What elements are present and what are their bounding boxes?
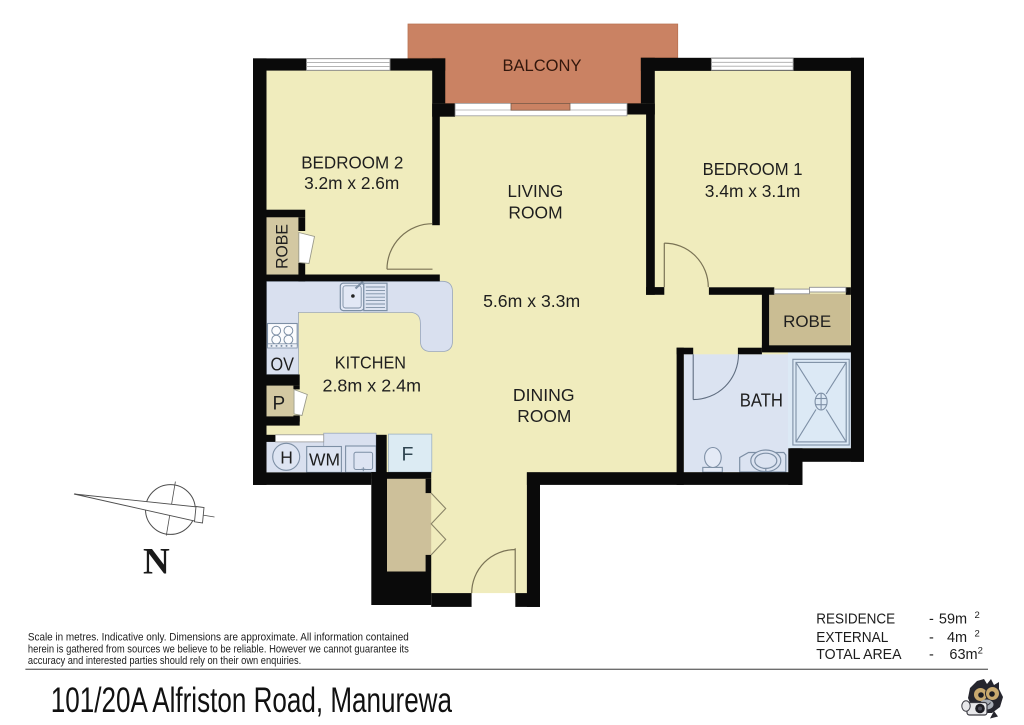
svg-text:59m: 59m (939, 612, 967, 628)
svg-text:DINING: DINING (513, 385, 575, 405)
svg-text:2: 2 (975, 610, 980, 621)
svg-text:herein is gathered from source: herein is gathered from sources we belie… (28, 643, 409, 655)
svg-text:-: - (929, 647, 934, 663)
svg-text:Scale in metres. Indicative on: Scale in metres. Indicative only. Dimens… (28, 631, 409, 643)
svg-text:2.8m x 2.4m: 2.8m x 2.4m (323, 376, 422, 396)
svg-text:EXTERNAL: EXTERNAL (816, 630, 888, 646)
svg-text:TOTAL AREA: TOTAL AREA (816, 647, 902, 663)
svg-text:LIVING: LIVING (508, 181, 564, 201)
svg-text:ROOM: ROOM (508, 203, 562, 223)
svg-text:P: P (273, 394, 286, 415)
svg-text:F: F (402, 444, 414, 466)
svg-text:accuracy and interested partie: accuracy and interested parties should r… (28, 655, 301, 667)
svg-text:KITCHEN: KITCHEN (335, 353, 406, 373)
svg-text:3.2m x 2.6m: 3.2m x 2.6m (304, 173, 399, 193)
svg-text:ROBE: ROBE (783, 312, 831, 331)
svg-text:101/20A Alfriston Road, Manure: 101/20A Alfriston Road, Manurewa (51, 680, 452, 720)
svg-text:BALCONY: BALCONY (503, 56, 582, 75)
svg-text:63m: 63m (949, 647, 977, 663)
svg-text:-: - (929, 630, 934, 646)
svg-text:BEDROOM 1: BEDROOM 1 (703, 159, 803, 179)
svg-text:OV: OV (271, 354, 295, 375)
svg-text:H: H (280, 448, 293, 468)
svg-text:BEDROOM 2: BEDROOM 2 (301, 153, 403, 173)
svg-text:N: N (143, 542, 170, 583)
svg-text:-: - (929, 612, 934, 628)
svg-text:4m: 4m (947, 630, 967, 646)
svg-text:ROOM: ROOM (517, 406, 571, 426)
svg-text:2: 2 (978, 645, 983, 656)
svg-text:5.6m x 3.3m: 5.6m x 3.3m (483, 291, 580, 311)
svg-text:3.4m x 3.1m: 3.4m x 3.1m (705, 181, 801, 201)
svg-text:WM: WM (309, 450, 340, 470)
svg-text:BATH: BATH (740, 391, 783, 411)
svg-text:ROBE: ROBE (273, 224, 292, 269)
svg-text:2: 2 (975, 628, 980, 639)
svg-text:RESIDENCE: RESIDENCE (816, 612, 895, 628)
